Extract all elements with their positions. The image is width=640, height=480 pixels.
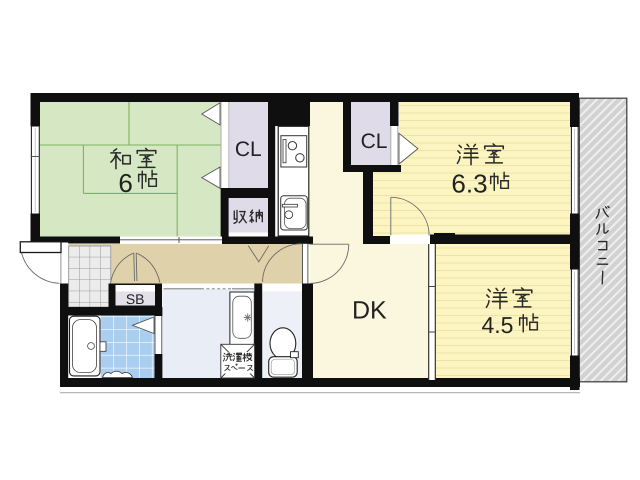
svg-text:6.3: 6.3 [451,169,487,199]
svg-text:6: 6 [118,168,132,198]
svg-text:CL: CL [235,138,262,161]
svg-text:SB: SB [126,291,145,307]
svg-text:DK: DK [352,296,387,324]
svg-text:CL: CL [361,130,388,153]
svg-text:4.5: 4.5 [482,312,514,338]
